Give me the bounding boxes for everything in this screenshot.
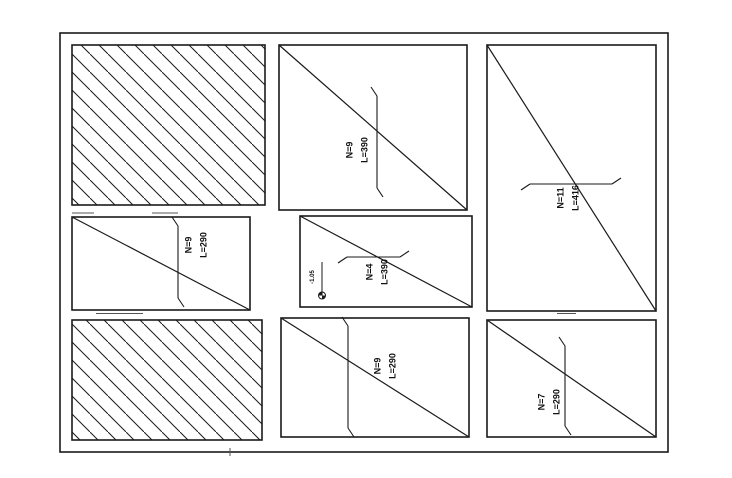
- panel-bottom-left-hatch: [72, 320, 262, 440]
- section-hook-top: [371, 87, 377, 96]
- panel-middle-center-label-l: L=390: [380, 259, 390, 285]
- panel-middle-left-label-n: N=9: [184, 237, 194, 254]
- panel-bottom-middle-label-l: L=290: [388, 353, 398, 379]
- panel-right-tall-label-n: N=11: [556, 187, 566, 208]
- section-hook-top: [559, 337, 565, 346]
- elevation-mark: -1.05: [310, 262, 326, 299]
- section-hook-top: [172, 217, 178, 226]
- section-hook-bottom: [348, 428, 354, 437]
- panel-top-left: [72, 45, 265, 205]
- panel-bottom-right-diagonal: [487, 320, 656, 437]
- panel-middle-left: N=9L=290: [72, 217, 250, 310]
- panel-middle-center-label-n: N=4: [365, 264, 375, 281]
- panel-top-left-hatch: [72, 45, 265, 205]
- panel-bottom-right-label-l: L=290: [552, 389, 562, 415]
- technical-drawing: N=9L=390N=11L=416N=9L=290N=4L=390-1.05N=…: [0, 0, 732, 478]
- panel-right-tall-label-l: L=416: [571, 185, 581, 211]
- panel-middle-left-diagonal: [72, 217, 250, 310]
- section-hook-left: [338, 257, 347, 263]
- section-hook-left: [521, 184, 530, 190]
- panel-bottom-middle-label-n: N=9: [373, 358, 383, 375]
- panel-bottom-middle-section-marker: [342, 317, 354, 437]
- panel-top-middle-label-l: L=390: [360, 137, 370, 163]
- panel-bottom-right-section-marker: [559, 337, 571, 435]
- panel-top-middle-label-n: N=9: [345, 142, 355, 159]
- panel-bottom-middle-diagonal: [281, 318, 469, 437]
- section-hook-right: [400, 251, 409, 257]
- panel-right-tall: N=11L=416: [487, 45, 656, 311]
- panel-middle-center-section-marker: [338, 251, 409, 263]
- panel-top-middle: N=9L=390: [279, 45, 467, 210]
- drawing-layer: N=9L=390N=11L=416N=9L=290N=4L=390-1.05N=…: [60, 33, 668, 456]
- panel-top-middle-section-marker: [371, 87, 383, 197]
- panel-top-middle-diagonal: [279, 45, 467, 210]
- panel-middle-center: N=4L=390-1.05: [300, 216, 472, 307]
- panel-bottom-right-label-n: N=7: [537, 394, 547, 411]
- section-hook-bottom: [377, 188, 383, 197]
- elevation-benchmark-quadrant: [322, 296, 326, 300]
- panel-right-tall-diagonal: [487, 45, 656, 311]
- section-hook-right: [612, 178, 621, 184]
- elevation-benchmark-quadrant: [319, 292, 323, 296]
- panel-middle-left-section-marker: [172, 217, 184, 307]
- panel-bottom-right: N=7L=290: [487, 320, 656, 437]
- drawing-stage: N=9L=390N=11L=416N=9L=290N=4L=390-1.05N=…: [0, 0, 732, 478]
- section-hook-bottom: [178, 298, 184, 307]
- elevation-value: -1.05: [310, 270, 316, 284]
- panel-bottom-left: [72, 320, 262, 440]
- panel-bottom-middle: N=9L=290: [281, 317, 469, 437]
- panel-middle-left-label-l: L=290: [199, 232, 209, 258]
- section-hook-bottom: [565, 426, 571, 435]
